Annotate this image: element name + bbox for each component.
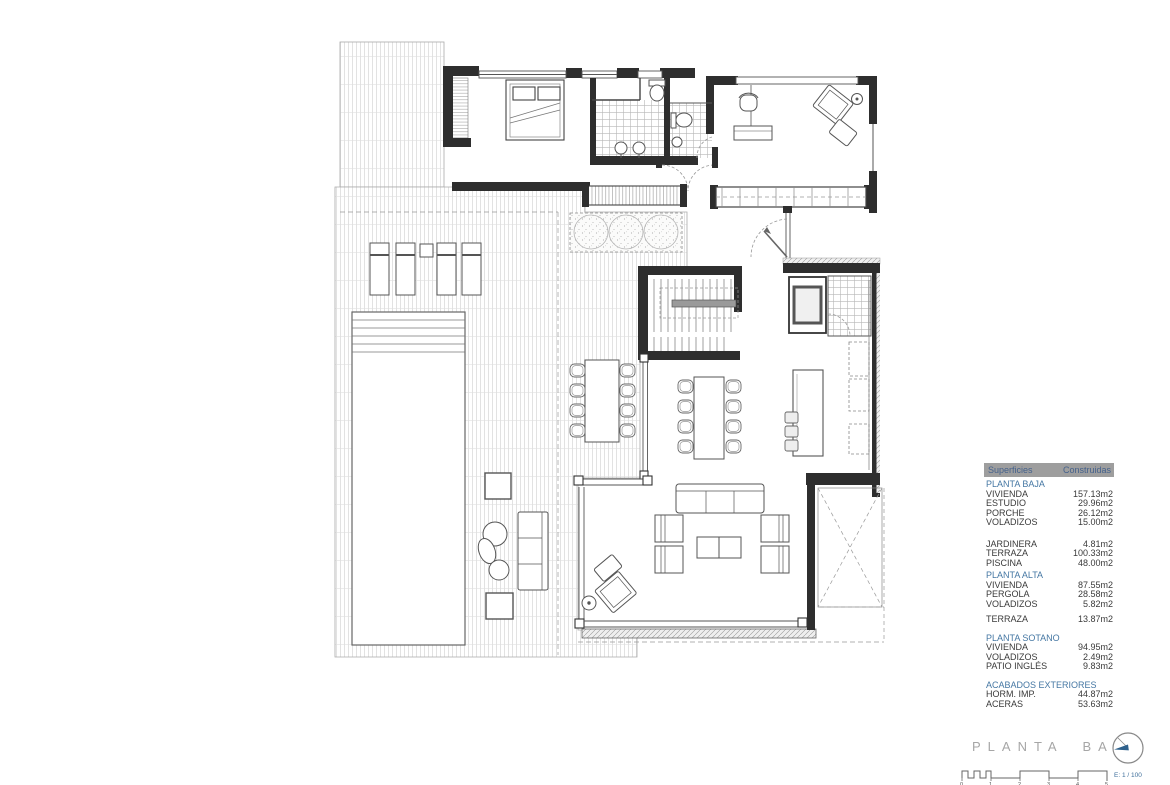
table-row: VOLADIZOS5.82m2 <box>984 600 1114 610</box>
pouf <box>489 560 509 580</box>
table-row: ACERAS53.63m2 <box>984 700 1114 710</box>
pergola-top-wall <box>806 473 880 485</box>
planter <box>485 473 511 499</box>
pillow <box>538 87 560 100</box>
compass-icon <box>1110 730 1146 766</box>
side-table <box>420 244 433 257</box>
row-label: VOLADIZOS <box>986 518 1038 528</box>
scale-bar-shape <box>962 771 1107 781</box>
areas-table: Superficies Construidas PLANTA BAJAVIVIE… <box>984 463 1114 709</box>
staircase <box>638 266 742 360</box>
outdoor-table <box>585 360 619 442</box>
row-value: 48.00m2 <box>1078 559 1113 569</box>
row-value: 53.63m2 <box>1078 700 1113 710</box>
window-band <box>716 187 866 207</box>
wardrobe <box>452 78 468 138</box>
entrance-door <box>751 206 792 265</box>
row-label: ACERAS <box>986 700 1023 710</box>
bathrooms <box>590 68 714 165</box>
east-wall <box>807 478 815 630</box>
pergola <box>818 488 884 642</box>
kitchen-island <box>785 370 823 456</box>
bathroom-floor <box>596 100 664 158</box>
scale-ratio-label: E: 1 / 100 <box>1114 772 1142 779</box>
bed <box>506 80 564 140</box>
table-row: VOLADIZOS15.00m2 <box>984 518 1114 528</box>
row-value: 9.83m2 <box>1083 662 1113 672</box>
windows <box>479 71 617 78</box>
row-value: 13.87m2 <box>1078 615 1113 625</box>
planter <box>486 593 513 619</box>
counter <box>849 342 869 454</box>
pillow <box>513 87 535 100</box>
window <box>736 77 858 84</box>
bathroom-floor <box>670 103 712 158</box>
drawing-sheet: Superficies Construidas PLANTA BAJAVIVIE… <box>0 0 1170 785</box>
scale-bar: 0 1 2 3 4 5 E: 1 / 100 <box>956 764 1156 785</box>
stools <box>785 412 798 451</box>
areas-table-header: Superficies Construidas <box>984 463 1114 477</box>
coffee-table <box>697 537 741 558</box>
table-row: PATIO INGLÉS9.83m2 <box>984 662 1114 672</box>
row-value: 15.00m2 <box>1078 518 1113 528</box>
toilet <box>671 113 692 128</box>
kitchen <box>783 258 880 497</box>
areas-table-rows: PLANTA BAJAVIVIENDA157.13m2ESTUDIO29.96m… <box>984 480 1114 709</box>
porch-window-band <box>582 184 687 207</box>
table-spacer <box>984 625 1114 631</box>
table-row: TERRAZA13.87m2 <box>984 615 1114 625</box>
handrail <box>672 300 736 307</box>
header-construidas: Construidas <box>1063 465 1111 475</box>
table-row: PISCINA48.00m2 <box>984 559 1114 569</box>
chimney-block <box>789 277 826 333</box>
window <box>638 71 662 78</box>
jardinera-planter <box>570 213 682 252</box>
study <box>706 76 877 213</box>
row-value: 5.82m2 <box>1083 600 1113 610</box>
glass-wall <box>640 354 648 479</box>
dining-area <box>640 354 741 479</box>
closet-wall <box>592 78 640 100</box>
table-spacer <box>984 672 1114 678</box>
sink <box>672 137 682 147</box>
pool <box>352 312 465 645</box>
row-label: VOLADIZOS <box>986 600 1038 610</box>
row-label: PISCINA <box>986 559 1022 569</box>
row-label: TERRAZA <box>986 615 1028 625</box>
toilet <box>649 80 665 101</box>
living-room <box>574 473 880 638</box>
pantry-floor <box>828 276 871 336</box>
header-superficies: Superficies <box>988 465 1033 475</box>
dining-table <box>694 377 724 459</box>
south-wall <box>582 618 816 638</box>
row-label: PATIO INGLÉS <box>986 662 1047 672</box>
outdoor-sofa <box>518 512 548 590</box>
sofa <box>676 484 764 513</box>
